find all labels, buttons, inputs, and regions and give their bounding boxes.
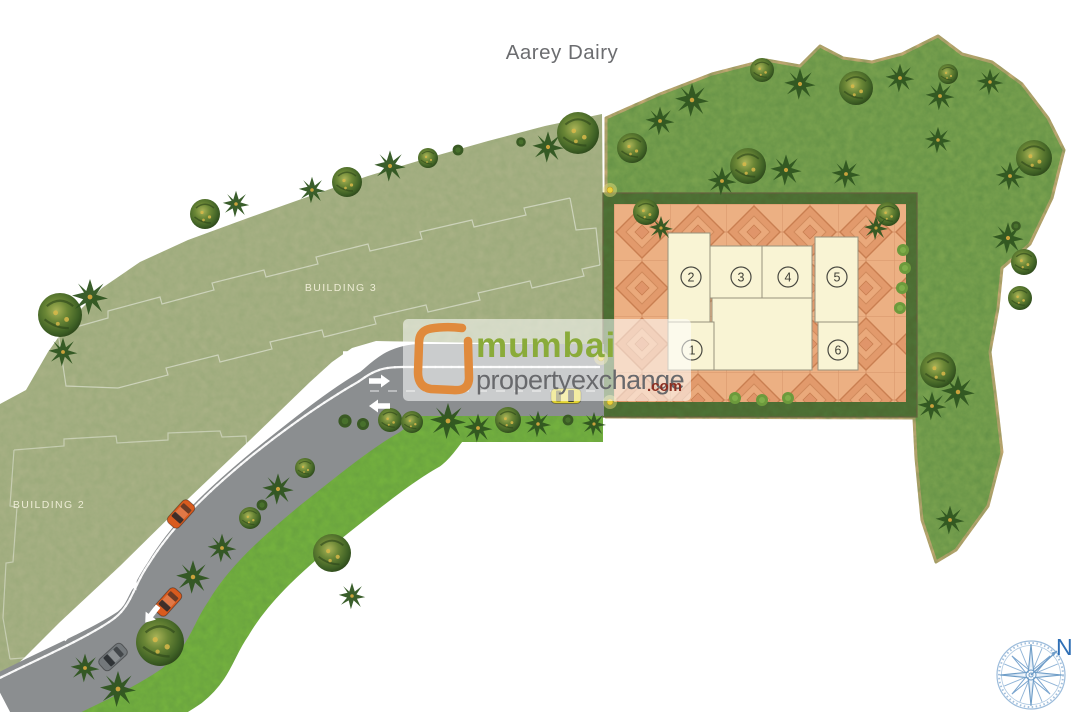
unit-number: 4 bbox=[785, 271, 792, 285]
unit-number: 2 bbox=[688, 271, 695, 285]
building2-label: BUILDING 2 bbox=[13, 499, 85, 511]
bush-icon bbox=[257, 500, 268, 511]
tree-icon bbox=[750, 58, 774, 82]
compass-rose-icon bbox=[997, 641, 1065, 709]
bush-icon bbox=[516, 137, 526, 147]
tree-icon bbox=[239, 507, 261, 529]
tree-icon bbox=[295, 458, 315, 478]
page-title: Aarey Dairy bbox=[506, 41, 619, 64]
tree-icon bbox=[332, 167, 362, 197]
tree-icon bbox=[190, 199, 220, 229]
tree-icon bbox=[378, 408, 402, 432]
unit-number: 3 bbox=[738, 271, 745, 285]
logo-suffix-com: .com bbox=[647, 378, 682, 395]
bush-icon bbox=[453, 145, 464, 156]
shrub-icon bbox=[894, 302, 906, 314]
watermark-logo: mumbai propertyexchange .com bbox=[403, 319, 691, 401]
tree-icon bbox=[313, 534, 351, 572]
tree-icon bbox=[839, 71, 873, 105]
tree-icon bbox=[38, 293, 82, 337]
tree-icon bbox=[495, 407, 521, 433]
tree-icon bbox=[136, 618, 184, 666]
shrub-icon bbox=[782, 392, 794, 404]
tree-icon bbox=[1011, 249, 1037, 275]
shrub-icon bbox=[756, 394, 768, 406]
unit-marker: 2 bbox=[681, 267, 701, 287]
unit-marker: 4 bbox=[778, 267, 798, 287]
bush-icon bbox=[1011, 221, 1021, 231]
tree-icon bbox=[418, 148, 438, 168]
unit-number: 6 bbox=[835, 344, 842, 358]
shrub-icon bbox=[729, 392, 741, 404]
tree-icon bbox=[1008, 286, 1032, 310]
tree-icon bbox=[557, 112, 599, 154]
shrub-icon bbox=[896, 282, 908, 294]
north-label: N bbox=[1056, 634, 1073, 660]
tree-icon bbox=[938, 64, 958, 84]
logo-word-mumbai: mumbai bbox=[476, 326, 616, 365]
tree-icon bbox=[876, 202, 900, 226]
tree-icon bbox=[401, 411, 423, 433]
bush-icon bbox=[338, 414, 351, 427]
tree-icon bbox=[1016, 140, 1052, 176]
unit-marker: 6 bbox=[828, 340, 848, 360]
tree-icon bbox=[730, 148, 766, 184]
building3-label: BUILDING 3 bbox=[305, 282, 377, 294]
site-plan-map: BUILDING 3 BUILDING 2 1 2 3 bbox=[0, 0, 1088, 712]
unit-number: 5 bbox=[834, 271, 841, 285]
unit-marker: 3 bbox=[731, 267, 751, 287]
bush-icon bbox=[357, 418, 369, 430]
lamp-icon bbox=[603, 183, 617, 197]
bush-icon bbox=[563, 415, 574, 426]
shrub-icon bbox=[897, 244, 909, 256]
center-block bbox=[712, 298, 812, 370]
unit-marker: 5 bbox=[827, 267, 847, 287]
tree-icon bbox=[920, 352, 956, 388]
tree-icon bbox=[617, 133, 647, 163]
shrub-icon bbox=[899, 262, 911, 274]
